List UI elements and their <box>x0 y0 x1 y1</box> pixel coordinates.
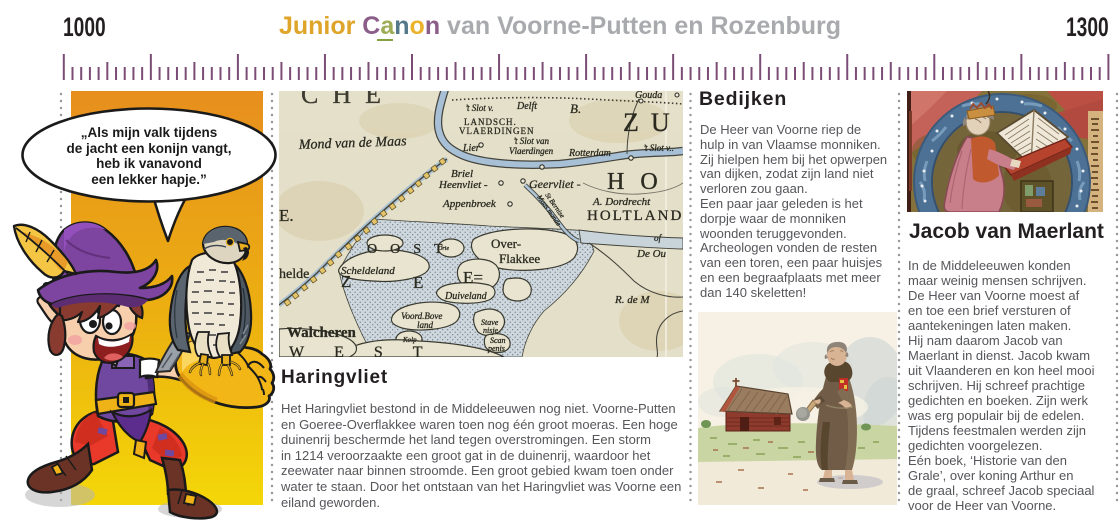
svg-text:HO: HO <box>607 169 674 195</box>
svg-text:’t Slot v.: ’t Slot v. <box>465 103 494 113</box>
svg-text:Rotterdam: Rotterdam <box>568 148 611 159</box>
svg-text:Duiveland: Duiveland <box>444 291 488 302</box>
svg-text:Drie: Drie <box>437 246 449 252</box>
svg-text:VLAERDINGEN: VLAERDINGEN <box>459 126 535 136</box>
svg-text:E=: E= <box>463 268 483 287</box>
svg-text:Delft: Delft <box>516 101 537 112</box>
svg-text:’t Slot van: ’t Slot van <box>513 136 549 146</box>
svg-text:helde: helde <box>279 267 309 282</box>
svg-text:Geervliet -: Geervliet - <box>529 177 581 191</box>
svg-text:Kolp: Kolp <box>402 336 417 344</box>
svg-text:nisje: nisje <box>483 326 499 335</box>
svg-text:Z: Z <box>341 272 351 291</box>
svg-text:E: E <box>413 273 423 292</box>
svg-text:Vlaerdingen: Vlaerdingen <box>509 146 554 156</box>
svg-text:Flakkee: Flakkee <box>499 251 540 266</box>
svg-text:A. Dordrecht: A. Dordrecht <box>592 196 651 208</box>
svg-text:De Ou: De Ou <box>636 248 667 260</box>
svg-text:ZU: ZU <box>623 108 682 137</box>
svg-text:Walcheren: Walcheren <box>287 325 357 341</box>
svg-text:HOLTLAND: HOLTLAND <box>587 208 683 224</box>
svg-text:land: land <box>417 320 434 330</box>
svg-text:’t Slot v..: ’t Slot v.. <box>643 143 674 153</box>
svg-text:R. de M: R. de M <box>614 294 650 306</box>
svg-text:CHE: CHE <box>301 91 395 109</box>
svg-text:Heenvliet -: Heenvliet - <box>438 179 488 191</box>
svg-text:B.: B. <box>570 101 581 116</box>
svg-text:Gouda: Gouda <box>635 91 662 101</box>
svg-text:penis: penis <box>487 344 505 353</box>
svg-text:E.: E. <box>279 206 294 225</box>
svg-text:Appenbroek: Appenbroek <box>442 198 497 210</box>
svg-text:WEST: WEST <box>289 344 453 357</box>
svg-text:Lier: Lier <box>462 143 480 154</box>
svg-text:Over-: Over- <box>491 236 521 251</box>
